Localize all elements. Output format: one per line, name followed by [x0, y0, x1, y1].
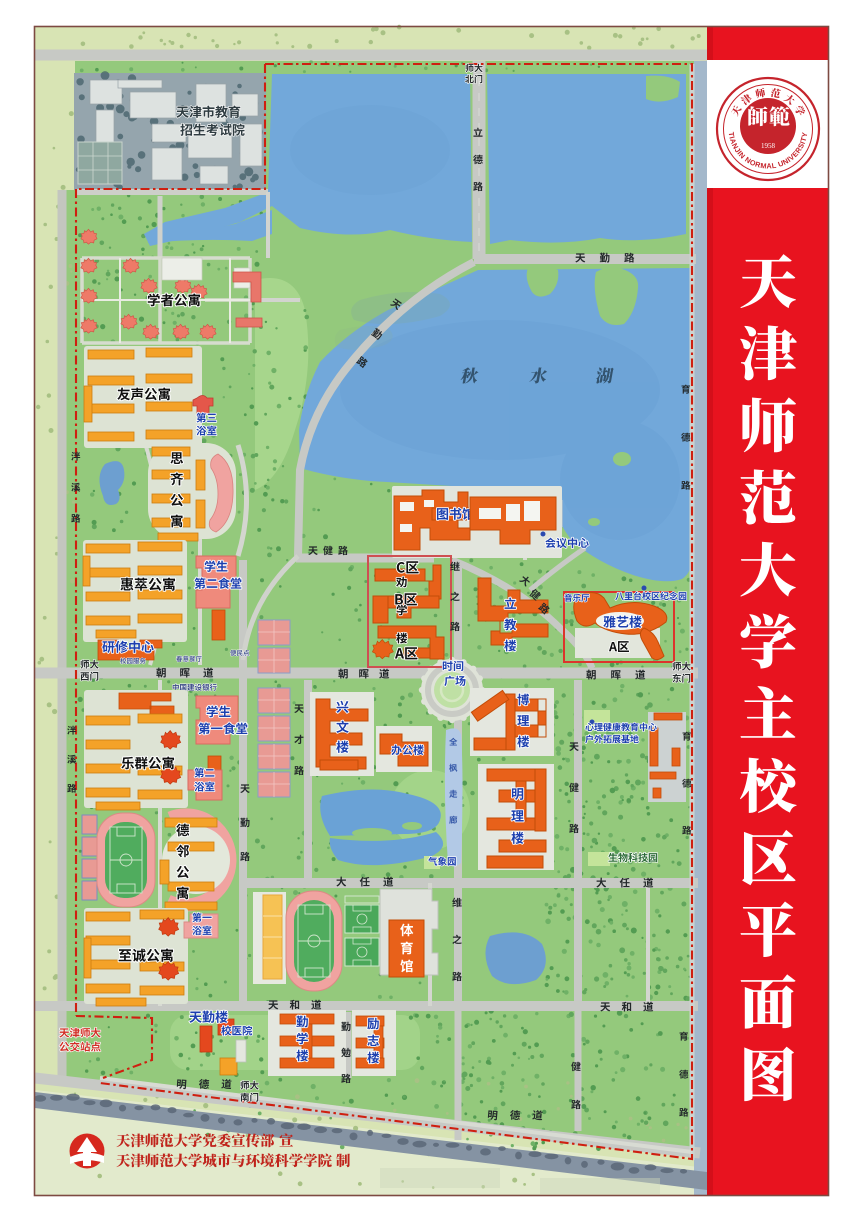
svg-text:1958: 1958	[761, 142, 776, 150]
